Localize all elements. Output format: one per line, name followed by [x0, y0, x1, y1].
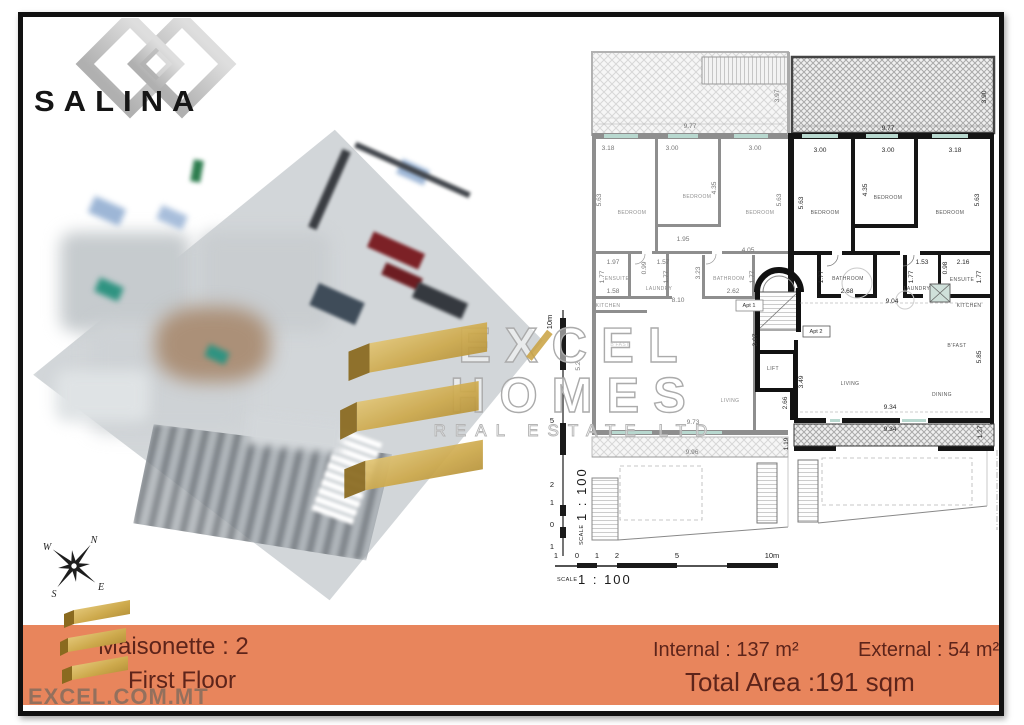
svg-text:LAUNDRY: LAUNDRY [646, 286, 673, 292]
svg-text:4.35: 4.35 [862, 183, 869, 196]
svg-text:3.07: 3.07 [752, 333, 759, 346]
svg-text:ENSUITE: ENSUITE [950, 277, 975, 283]
svg-text:9.96: 9.96 [686, 449, 699, 456]
svg-text:9.77: 9.77 [684, 123, 697, 130]
svg-text:4.35: 4.35 [711, 181, 718, 194]
apartment-2-windows [802, 134, 968, 422]
excel-homes-logo-icon [60, 598, 138, 698]
svg-text:LIFT: LIFT [767, 366, 779, 372]
svg-text:1: 1 [550, 498, 554, 507]
svg-text:2.62: 2.62 [727, 288, 740, 295]
poster: SCALE 1 : 100 SCALE 1 : 100 9.773.979.77… [0, 0, 1024, 725]
svg-text:SCALE: SCALE [579, 524, 585, 545]
svg-text:0: 0 [550, 520, 554, 529]
svg-text:BEDROOM: BEDROOM [811, 210, 840, 216]
svg-text:LAUNDRY: LAUNDRY [904, 286, 931, 292]
svg-text:KITCHEN: KITCHEN [596, 303, 621, 309]
scale-value: 1 : 100 [578, 572, 632, 587]
svg-text:1.57: 1.57 [657, 259, 670, 266]
svg-text:5.63: 5.63 [596, 193, 603, 206]
svg-text:2.66: 2.66 [782, 396, 789, 409]
svg-text:KITCHEN: KITCHEN [957, 303, 982, 309]
svg-text:1: 1 [550, 542, 554, 551]
svg-text:10m: 10m [765, 551, 780, 560]
svg-text:ENSUITE: ENSUITE [605, 276, 630, 282]
lower-terraces [592, 450, 997, 540]
svg-text:9.77: 9.77 [882, 125, 895, 132]
excel-homes-logo-icon [340, 318, 504, 528]
svg-text:DINING: DINING [932, 392, 952, 398]
svg-text:3.49: 3.49 [798, 375, 805, 388]
salina-title: SALINA [34, 85, 246, 118]
svg-text:W: W [43, 542, 53, 553]
svg-text:3.18: 3.18 [949, 147, 962, 154]
compass-icon: N E S W [43, 535, 104, 600]
svg-text:1.77: 1.77 [663, 270, 670, 283]
svg-text:4.05: 4.05 [742, 247, 755, 254]
svg-text:1.95: 1.95 [677, 236, 690, 243]
svg-text:3.00: 3.00 [882, 147, 895, 154]
svg-text:N: N [90, 535, 99, 546]
svg-text:3.23: 3.23 [695, 266, 702, 279]
svg-text:3.00: 3.00 [814, 147, 827, 154]
svg-text:E: E [97, 582, 104, 593]
svg-text:BATHROOM: BATHROOM [713, 276, 745, 282]
svg-text:0.98: 0.98 [942, 261, 949, 274]
svg-text:2: 2 [550, 480, 554, 489]
svg-text:3.90: 3.90 [981, 90, 988, 103]
svg-text:8.10: 8.10 [672, 297, 685, 304]
svg-text:BEDROOM: BEDROOM [874, 195, 903, 201]
svg-text:3.00: 3.00 [666, 145, 679, 152]
scale-label: SCALE [557, 577, 578, 583]
svg-text:1.58: 1.58 [607, 288, 620, 295]
svg-text:1.27: 1.27 [977, 425, 984, 438]
website-label: EXCEL.COM.MT [28, 684, 209, 710]
svg-text:9.04: 9.04 [886, 298, 899, 305]
svg-text:3.18: 3.18 [602, 145, 615, 152]
svg-text:5: 5 [675, 551, 679, 560]
svg-text:Apt 1: Apt 1 [742, 303, 755, 309]
svg-text:LIVING: LIVING [721, 398, 740, 404]
svg-text:3.00: 3.00 [749, 145, 762, 152]
svg-text:1.77: 1.77 [908, 270, 915, 283]
total-area-label: Total Area :191 sqm [685, 667, 915, 698]
svg-text:1 : 100: 1 : 100 [574, 467, 589, 521]
external-area-label: External : 54 m² [858, 639, 999, 662]
svg-text:2: 2 [615, 551, 619, 560]
svg-text:5.85: 5.85 [976, 350, 983, 363]
svg-text:5.63: 5.63 [776, 193, 783, 206]
svg-text:0: 0 [575, 551, 579, 560]
horizontal-ruler [555, 563, 778, 568]
svg-text:2.68: 2.68 [841, 288, 854, 295]
vertical-scale-text: SCALE 1 : 100 [574, 467, 589, 545]
svg-text:B'FAST: B'FAST [947, 343, 966, 349]
svg-text:0.99: 0.99 [641, 261, 648, 274]
internal-area-label: Internal : 137 m² [653, 639, 799, 662]
svg-text:9.34: 9.34 [884, 426, 897, 433]
svg-text:5.63: 5.63 [974, 193, 981, 206]
terrace-right [792, 57, 994, 133]
svg-text:1.97: 1.97 [607, 259, 620, 266]
svg-text:LIVING: LIVING [841, 381, 860, 387]
svg-text:2.16: 2.16 [957, 259, 970, 266]
svg-text:3.97: 3.97 [774, 89, 781, 102]
svg-text:9.34: 9.34 [884, 404, 897, 411]
svg-text:1: 1 [595, 551, 599, 560]
svg-text:Apt 2: Apt 2 [809, 329, 822, 335]
svg-text:5.63: 5.63 [798, 196, 805, 209]
svg-text:BEDROOM: BEDROOM [683, 194, 712, 200]
svg-text:1.77: 1.77 [976, 270, 983, 283]
svg-text:S: S [52, 589, 57, 600]
svg-text:1: 1 [554, 551, 558, 560]
svg-text:BEDROOM: BEDROOM [618, 210, 647, 216]
svg-text:1.77: 1.77 [818, 270, 825, 283]
svg-text:BEDROOM: BEDROOM [936, 210, 965, 216]
svg-text:BEDROOM: BEDROOM [746, 210, 775, 216]
svg-text:BATHROOM: BATHROOM [832, 276, 864, 282]
svg-text:1.19: 1.19 [783, 437, 790, 450]
salina-logo: SALINA [30, 18, 250, 133]
svg-text:1.77: 1.77 [749, 270, 756, 283]
svg-text:1.53: 1.53 [916, 259, 929, 266]
